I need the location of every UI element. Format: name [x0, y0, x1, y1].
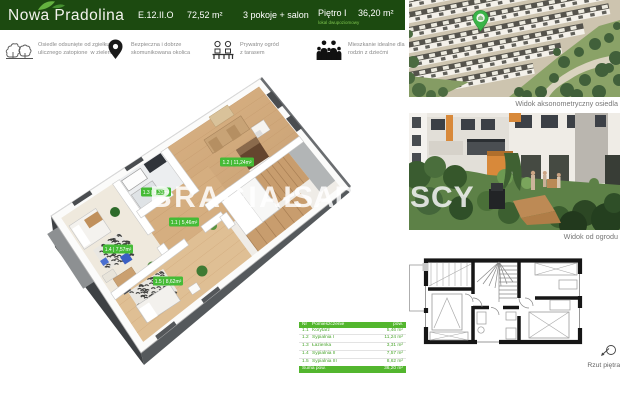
svg-text:1.4 | 7,57m²: 1.4 | 7,57m² — [105, 247, 132, 253]
svg-text:1.2 | 11,24m²: 1.2 | 11,24m² — [223, 160, 252, 166]
svg-text:1.5 | 8,62m²: 1.5 | 8,62m² — [155, 279, 182, 285]
svg-text:1.1 | 5,46m²: 1.1 | 5,46m² — [171, 220, 198, 226]
